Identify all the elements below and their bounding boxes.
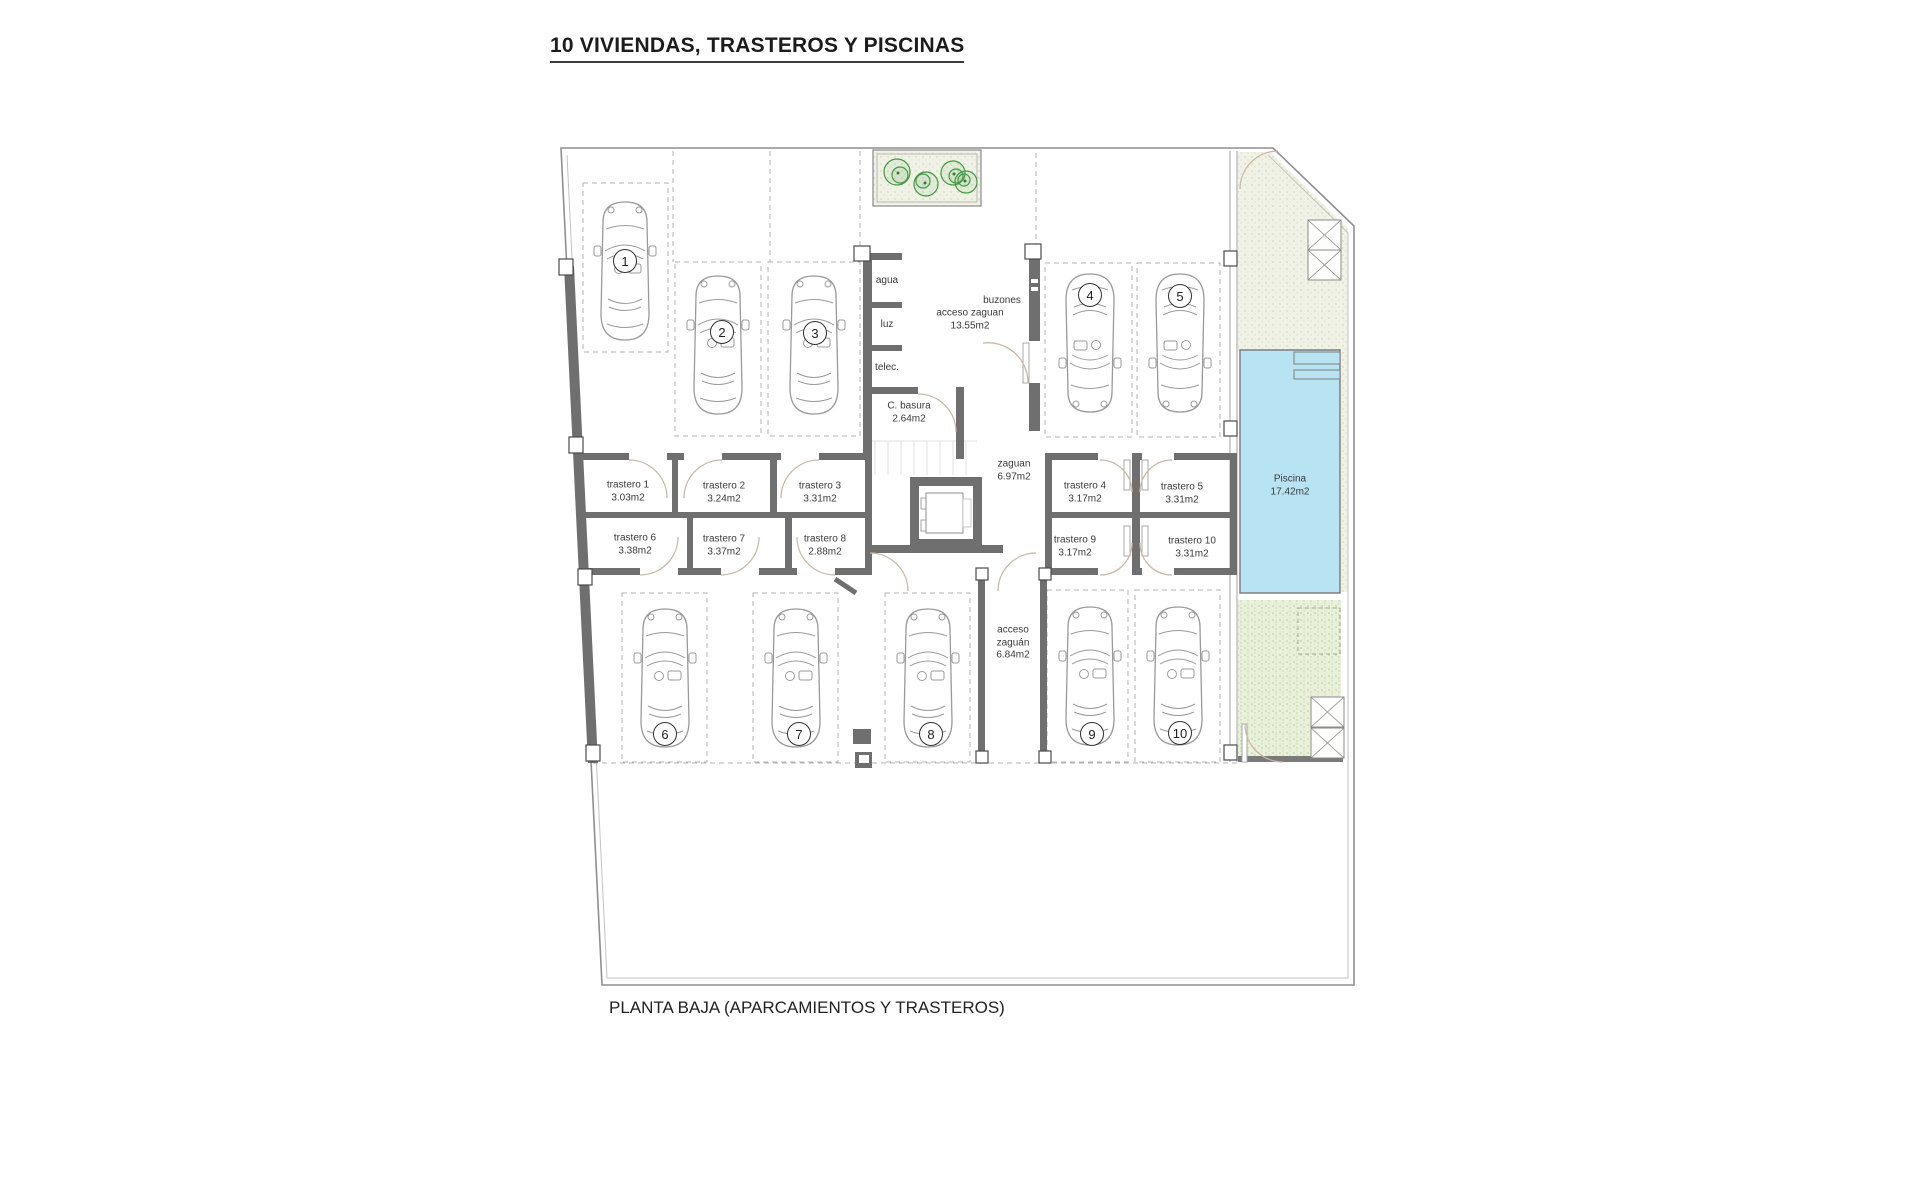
room-label-telec: telec. [875, 362, 899, 375]
drawing-title: 10 VIVIENDAS, TRASTEROS Y PISCINAS [550, 34, 964, 63]
parking-number-9: 9 [1080, 722, 1104, 746]
room-label-trastero-6: trastero 63.38m2 [614, 533, 656, 558]
floor-plan-drawing [557, 141, 1362, 1001]
parking-number-2: 2 [710, 320, 734, 344]
room-label-trastero-8: trastero 82.88m2 [804, 534, 846, 559]
room-label-trastero-10: trastero 103.31m2 [1168, 536, 1216, 561]
parking-number-7: 7 [787, 722, 811, 746]
planter [873, 150, 981, 206]
parking-number-8: 8 [919, 722, 943, 746]
parking-number-4: 4 [1078, 283, 1102, 307]
room-label-agua: agua [876, 275, 898, 288]
elevator-icon [919, 486, 973, 539]
drawing-sheet: { "title": "10 VIVIENDAS, TRASTEROS Y PI… [0, 0, 1920, 1200]
room-label-trastero-2: trastero 23.24m2 [703, 481, 745, 506]
room-label-trastero-1: trastero 13.03m2 [607, 480, 649, 505]
cars [594, 202, 1211, 747]
parking-number-6: 6 [653, 722, 677, 746]
room-label-trastero-9: trastero 93.17m2 [1054, 535, 1096, 560]
floor-plan: 1 2 3 4 5 6 7 8 9 10 agua luz telec. C. … [557, 141, 1362, 1001]
room-label-acceso-zaguan-sur: acceso zaguán 6.84m2 [996, 624, 1029, 662]
parking-number-1: 1 [613, 249, 637, 273]
plan-caption: PLANTA BAJA (APARCAMIENTOS Y TRASTEROS) [609, 998, 1005, 1018]
parking-number-3: 3 [803, 321, 827, 345]
parking-number-10: 10 [1168, 721, 1192, 745]
room-label-piscina: Piscina17.42m2 [1271, 474, 1310, 499]
room-label-trastero-7: trastero 73.37m2 [703, 534, 745, 559]
parking-number-5: 5 [1168, 284, 1192, 308]
room-label-basura: C. basura2.64m2 [887, 401, 930, 426]
room-label-zaguan: zaguan6.97m2 [997, 459, 1030, 484]
room-label-buzones: buzones [983, 295, 1021, 308]
room-label-luz: luz [881, 319, 894, 332]
room-label-acceso-zaguan: acceso zaguan13.55m2 [936, 308, 1003, 333]
room-label-trastero-5: trastero 53.31m2 [1161, 482, 1203, 507]
room-label-trastero-4: trastero 43.17m2 [1064, 481, 1106, 506]
room-label-trastero-3: trastero 33.31m2 [799, 481, 841, 506]
pool [1240, 350, 1340, 593]
